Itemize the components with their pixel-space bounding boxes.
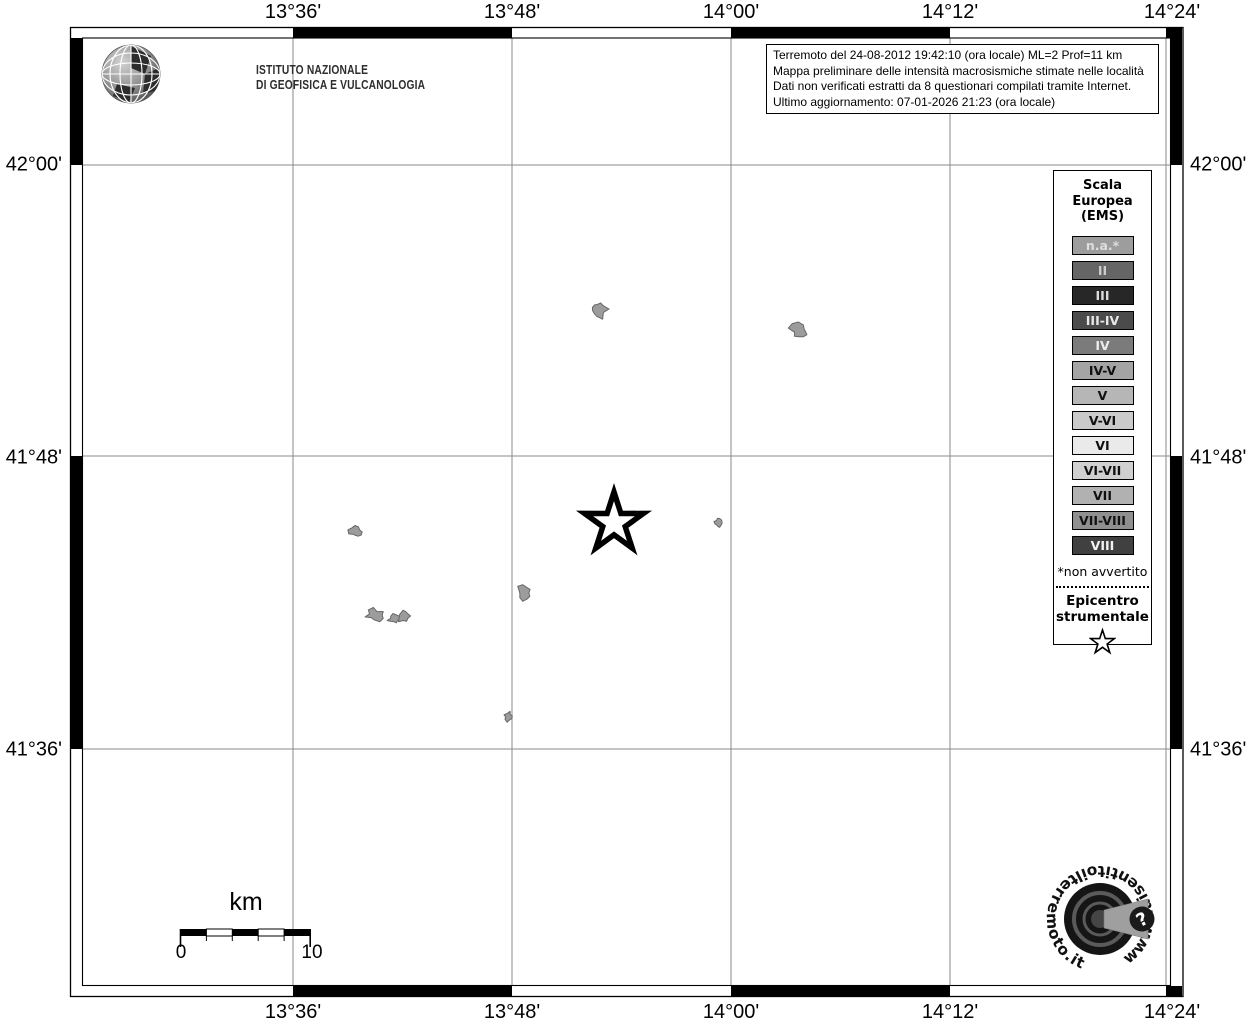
legend-swatch-iii: III — [1072, 286, 1134, 305]
legend-swatch-iv-v: IV-V — [1072, 361, 1134, 380]
locality-polygon — [504, 711, 512, 722]
ingv-wordmark: ISTITUTO NAZIONALE DI GEOFISICA E VULCAN… — [256, 63, 425, 92]
legend-footnote: *non avvertito — [1054, 564, 1151, 579]
axis-label-top-1424: 14°24' — [1144, 1, 1200, 24]
axis-label-right-4136: 41°36' — [1190, 739, 1246, 762]
legend-swatch-vii-viii: VII-VIII — [1072, 511, 1134, 530]
axis-label-bottom-1348: 13°48' — [484, 1001, 540, 1024]
legend-swatch-v-vi: V-VI — [1072, 411, 1134, 430]
hai-sentito-logo: www.haisentitoilterremoto.it ? — [1043, 862, 1158, 973]
ingv-wordmark-line2: DI GEOFISICA E VULCANOLOGIA — [256, 78, 425, 93]
legend-title-line3: (EMS) — [1054, 209, 1151, 225]
legend-swatch-vi-vii: VI-VII — [1072, 461, 1134, 480]
locality-polygon — [788, 322, 807, 337]
locality-polygon — [399, 610, 411, 622]
legend-epicenter-label-line1: Epicentro — [1054, 593, 1151, 609]
axis-label-right-4148: 41°48' — [1190, 447, 1246, 470]
legend-star-icon — [1089, 628, 1116, 656]
info-line-data: Dati non verificati estratti da 8 questi… — [773, 79, 1154, 95]
locality-polygon — [518, 585, 530, 602]
legend-swatch-iv: IV — [1072, 336, 1134, 355]
legend-divider — [1056, 586, 1149, 588]
axis-label-top-1348: 13°48' — [484, 1, 540, 24]
locality-polygon — [387, 614, 400, 623]
info-line-map: Mappa preliminare delle intensità macros… — [773, 64, 1154, 80]
legend-swatch-v: V — [1072, 386, 1134, 405]
legend-swatch-vii: VII — [1072, 486, 1134, 505]
legend-title-line1: Scala — [1054, 178, 1151, 194]
scalebar-end-label: 10 — [301, 942, 322, 964]
axis-label-left-4148: 41°48' — [0, 447, 62, 470]
axis-label-left-4136: 41°36' — [0, 739, 62, 762]
legend-swatch-na: n.a.* — [1072, 236, 1134, 255]
info-line-updated: Ultimo aggiornamento: 07-01-2026 21:23 (… — [773, 95, 1154, 111]
legend-swatch-ii: II — [1072, 261, 1134, 280]
axis-label-top-1336: 13°36' — [265, 1, 321, 24]
locality-polygon — [714, 518, 722, 527]
scale-bar — [181, 929, 311, 947]
earthquake-info-box: Terremoto del 24-08-2012 19:42:10 (ora l… — [766, 44, 1159, 114]
ems-scale-legend: Scala Europea (EMS) n.a.* II III III-IV … — [1053, 170, 1152, 645]
legend-items: n.a.* II III III-IV IV IV-V V V-VI VI VI… — [1054, 236, 1151, 555]
scalebar-unit-label: km — [229, 888, 262, 917]
scalebar-start-label: 0 — [176, 942, 187, 964]
legend-title: Scala Europea (EMS) — [1054, 178, 1151, 225]
locality-polygon — [592, 303, 609, 319]
macroseismic-map-page: www.haisentitoilterremoto.it ? 13°36' 13… — [0, 0, 1255, 1024]
legend-title-line2: Europea — [1054, 194, 1151, 210]
axis-label-left-4200: 42°00' — [0, 154, 62, 177]
axis-label-right-4200: 42°00' — [1190, 154, 1246, 177]
epicenter-star — [585, 492, 644, 548]
info-line-event: Terremoto del 24-08-2012 19:42:10 (ora l… — [773, 48, 1154, 64]
axis-label-bottom-1424: 14°24' — [1144, 1001, 1200, 1024]
locality-polygon — [348, 525, 362, 536]
legend-swatch-vi: VI — [1072, 436, 1134, 455]
axis-label-top-1412: 14°12' — [922, 1, 978, 24]
axis-label-top-1400: 14°00' — [703, 1, 759, 24]
legend-swatch-iii-iv: III-IV — [1072, 311, 1134, 330]
locality-polygon — [365, 607, 383, 621]
axis-label-bottom-1336: 13°36' — [265, 1001, 321, 1024]
axis-label-bottom-1400: 14°00' — [703, 1001, 759, 1024]
locality-markers — [348, 303, 807, 722]
ingv-globe-logo — [102, 45, 160, 103]
legend-swatch-viii: VIII — [1072, 536, 1134, 555]
ingv-wordmark-line1: ISTITUTO NAZIONALE — [256, 63, 425, 78]
axis-label-bottom-1412: 14°12' — [922, 1001, 978, 1024]
legend-epicenter-label-line2: strumentale — [1054, 609, 1151, 625]
